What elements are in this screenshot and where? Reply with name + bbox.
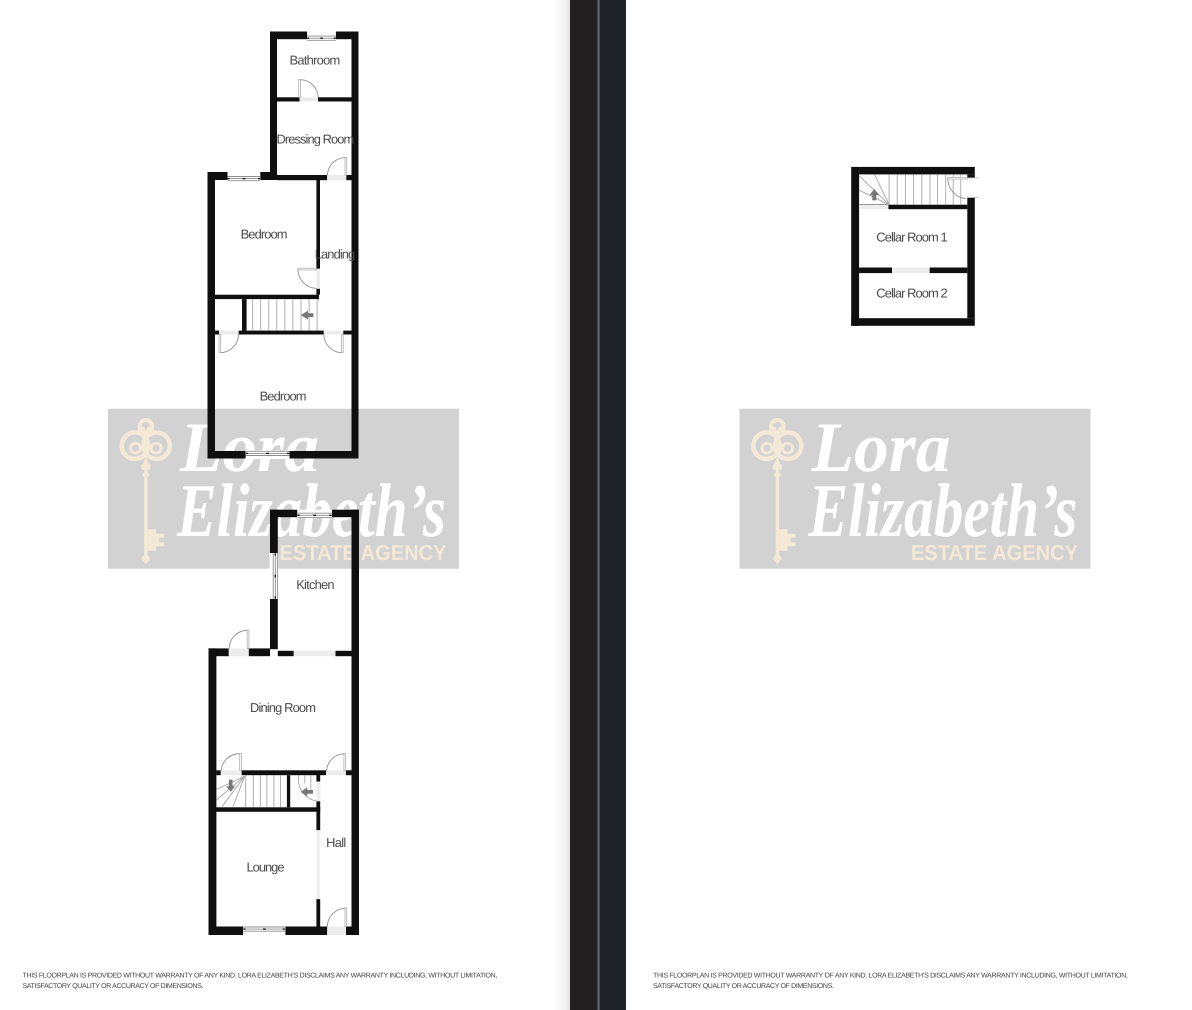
svg-text:Bedroom: Bedroom: [241, 227, 288, 242]
svg-text:SATISFACTORY QUALITY OR ACCURA: SATISFACTORY QUALITY OR ACCURACY OF DIME…: [23, 983, 204, 990]
svg-text:Cellar Room 1: Cellar Room 1: [876, 230, 947, 245]
svg-text:Dining Room: Dining Room: [250, 700, 316, 715]
svg-text:Lounge: Lounge: [247, 859, 285, 874]
svg-text:THIS FLOORPLAN IS PROVIDED WIT: THIS FLOORPLAN IS PROVIDED WITHOUT WARRA…: [23, 973, 498, 980]
svg-text:Kitchen: Kitchen: [296, 577, 334, 592]
svg-text:THIS FLOORPLAN IS PROVIDED WIT: THIS FLOORPLAN IS PROVIDED WITHOUT WARRA…: [653, 973, 1128, 980]
svg-text:Bathroom: Bathroom: [290, 53, 341, 68]
svg-text:Bedroom: Bedroom: [260, 389, 307, 404]
svg-text:Cellar Room 2: Cellar Room 2: [876, 286, 947, 301]
svg-text:Hall: Hall: [326, 835, 346, 850]
svg-text:Dressing Room: Dressing Room: [277, 131, 355, 146]
svg-text:Landing: Landing: [315, 247, 355, 262]
svg-text:SATISFACTORY QUALITY OR ACCURA: SATISFACTORY QUALITY OR ACCURACY OF DIME…: [653, 983, 834, 990]
